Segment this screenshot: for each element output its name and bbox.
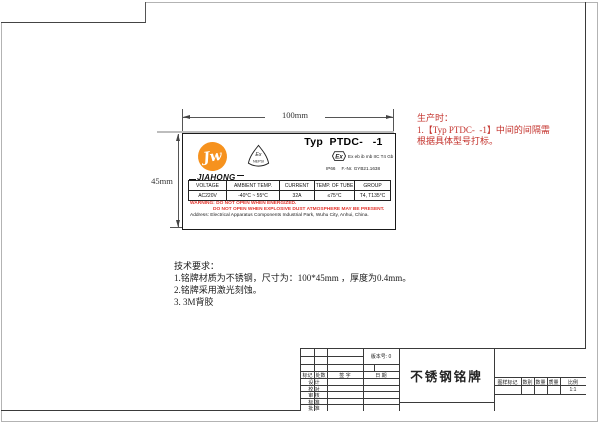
tech-requirements: 技术要求： 1.铭牌材质为不锈钢，尺寸为：100*45mm ，厚度为0.4mm。… — [174, 260, 434, 308]
row-label-approve: 批 准 — [301, 405, 327, 412]
ex-marking-row: Ex Ex eb ib mb IIC T4 Gb — [332, 150, 393, 162]
title-block-line — [494, 394, 586, 395]
spec-table-value-row: AC220V -40°C ~ 55°C 32A ≤75°C T4, T135°C — [189, 191, 391, 201]
drawing-sheet: 100mm 45mm Jw JIAHONG Ex NEPSI Typ PTDC-… — [0, 0, 600, 426]
dimension-arrow-down-icon — [176, 220, 180, 227]
warning-line-1: WARNING: DO NOT OPEN WHEN ENERGIZED. — [190, 201, 296, 206]
model-title: Typ PTDC- -1 — [295, 136, 392, 148]
spec-value: -40°C ~ 55°C — [227, 191, 280, 201]
spec-value: 32A — [280, 191, 315, 201]
dimension-line-vertical — [178, 134, 179, 227]
warning-line-2: DO NOT OPEN WHEN EXPLOSIVE DUST ATMOSPHE… — [213, 207, 384, 212]
address-line: Address: Electrical Apparatus Components… — [190, 213, 369, 218]
dimension-arrow-up-icon — [176, 134, 180, 141]
tech-requirements-title: 技术要求： — [174, 260, 434, 272]
title-block-line — [301, 356, 363, 357]
title-block: 版本号: 0 标记 处数 签 字 日 期 设 计 校 对 审 核 标 准 批 准… — [300, 348, 586, 411]
production-note: 生产时： 1.【Typ PTDC- -1】中间的间隔需 根据具体型号打标。 — [417, 113, 592, 148]
right-header-weight: 质量 — [547, 379, 560, 386]
nepsi-name-text: NEPSI — [253, 159, 264, 163]
right-header-quantity: 数量 — [534, 379, 547, 386]
version-number: 版本号: 0 — [363, 353, 399, 360]
dimension-arrow-left-icon — [183, 115, 190, 119]
spec-header: AMBIENT TEMP. — [227, 181, 280, 191]
dimension-width-label: 100mm — [265, 110, 325, 120]
right-header-stage: 数别 — [521, 379, 534, 386]
right-header-drawing-mark: 图样标记 — [494, 379, 521, 386]
production-note-heading: 生产时： — [417, 113, 592, 125]
title-block-line — [399, 402, 494, 403]
right-header-scale: 比例 — [560, 379, 586, 386]
top-left-block — [1, 2, 146, 23]
ip-filenumber-row: IP66 F.-Nr. GYB21.1638 — [326, 166, 380, 171]
title-block-line — [301, 364, 399, 365]
spec-header: TEMP. OF TUBE — [315, 181, 355, 191]
title-block-line — [327, 349, 328, 411]
atex-ex-hexagon-icon: Ex — [332, 150, 346, 162]
rev-header-date: 日 期 — [363, 372, 399, 379]
rev-header-mark: 标记 — [301, 372, 314, 379]
tech-requirement-item: 1.铭牌材质为不锈钢，尺寸为：100*45mm ，厚度为0.4mm。 — [174, 272, 434, 284]
spec-header: VOLTAGE — [189, 181, 227, 191]
nameplate-drawing: Jw JIAHONG Ex NEPSI Typ PTDC- -1 Ex Ex e… — [182, 133, 396, 230]
spec-value: T4, T135°C — [355, 191, 391, 201]
ip-rating: IP66 — [326, 166, 335, 171]
spec-value: ≤75°C — [315, 191, 355, 201]
tech-requirement-item: 2.铭牌采用激光刻蚀。 — [174, 284, 434, 296]
rev-header-signature: 签 字 — [327, 372, 363, 379]
dimension-height-label: 45mm — [147, 176, 177, 186]
dimension-arrow-right-icon — [386, 115, 393, 119]
extension-line-left — [182, 109, 183, 131]
spec-table: VOLTAGE AMBIENT TEMP. CURRENT TEMP. OF T… — [188, 180, 391, 201]
atex-ex-text: Ex — [335, 153, 343, 160]
nepsi-ex-text: Ex — [255, 152, 262, 158]
scale-value: 1:1 — [560, 387, 586, 393]
spec-value: AC220V — [189, 191, 227, 201]
extension-line-right — [393, 109, 394, 131]
rev-header-count: 处数 — [314, 372, 327, 379]
spec-table-header-row: VOLTAGE AMBIENT TEMP. CURRENT TEMP. OF T… — [189, 181, 391, 191]
production-note-line: 根据具体型号打标。 — [417, 136, 592, 148]
spec-header: CURRENT — [280, 181, 315, 191]
spec-header: GROUP — [355, 181, 391, 191]
file-number: F.-Nr. GYB21.1638 — [341, 166, 380, 171]
drawing-title: 不锈钢铭牌 — [399, 366, 494, 385]
nepsi-ex-mark-icon: Ex NEPSI — [246, 143, 271, 169]
title-block-line — [374, 364, 375, 371]
jiahong-logo-icon: Jw — [196, 140, 229, 173]
ex-marking-text: Ex eb ib mb IIC T4 Gb — [348, 154, 393, 159]
tech-requirement-item: 3. 3M背胶 — [174, 296, 434, 308]
production-note-line: 1.【Typ PTDC- -1】中间的间隔需 — [417, 125, 592, 137]
